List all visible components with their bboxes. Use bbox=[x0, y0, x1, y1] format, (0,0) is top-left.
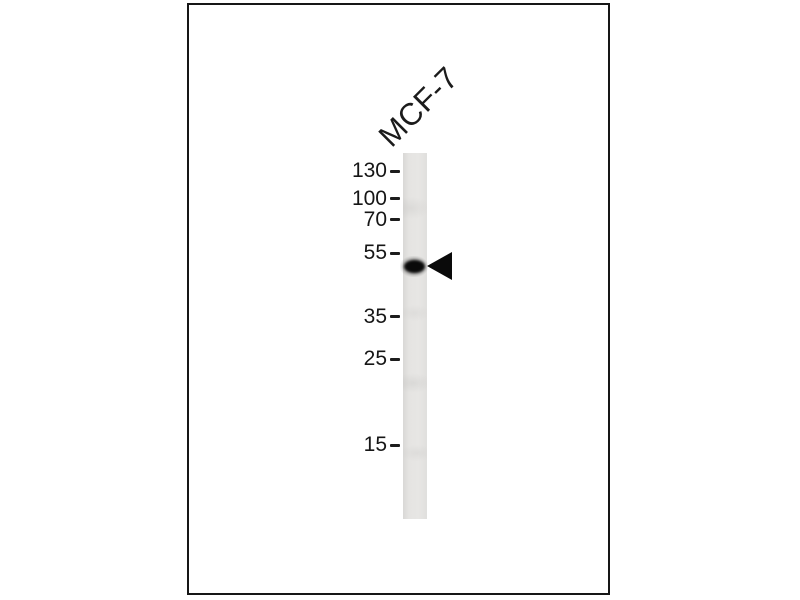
mw-tick-100 bbox=[390, 197, 400, 200]
mw-tick-130 bbox=[390, 170, 400, 173]
mw-tick-25 bbox=[390, 358, 400, 361]
blot-panel bbox=[187, 3, 610, 595]
mw-label-70: 70 bbox=[300, 209, 387, 231]
mw-tick-70 bbox=[390, 218, 400, 221]
band-arrowhead-icon bbox=[427, 252, 452, 280]
mw-label-15: 15 bbox=[300, 434, 387, 456]
mw-tick-15 bbox=[390, 444, 400, 447]
mw-label-100: 100 bbox=[300, 188, 387, 210]
western-blot-figure: MCF-7 130 100 70 55 35 25 15 bbox=[0, 0, 800, 600]
protein-band bbox=[404, 260, 425, 273]
lane-strip bbox=[403, 153, 427, 519]
mw-label-55: 55 bbox=[300, 242, 387, 264]
mw-label-35: 35 bbox=[300, 306, 387, 328]
mw-tick-55 bbox=[390, 252, 400, 255]
mw-label-130: 130 bbox=[300, 160, 387, 182]
mw-tick-35 bbox=[390, 315, 400, 318]
mw-label-25: 25 bbox=[300, 348, 387, 370]
